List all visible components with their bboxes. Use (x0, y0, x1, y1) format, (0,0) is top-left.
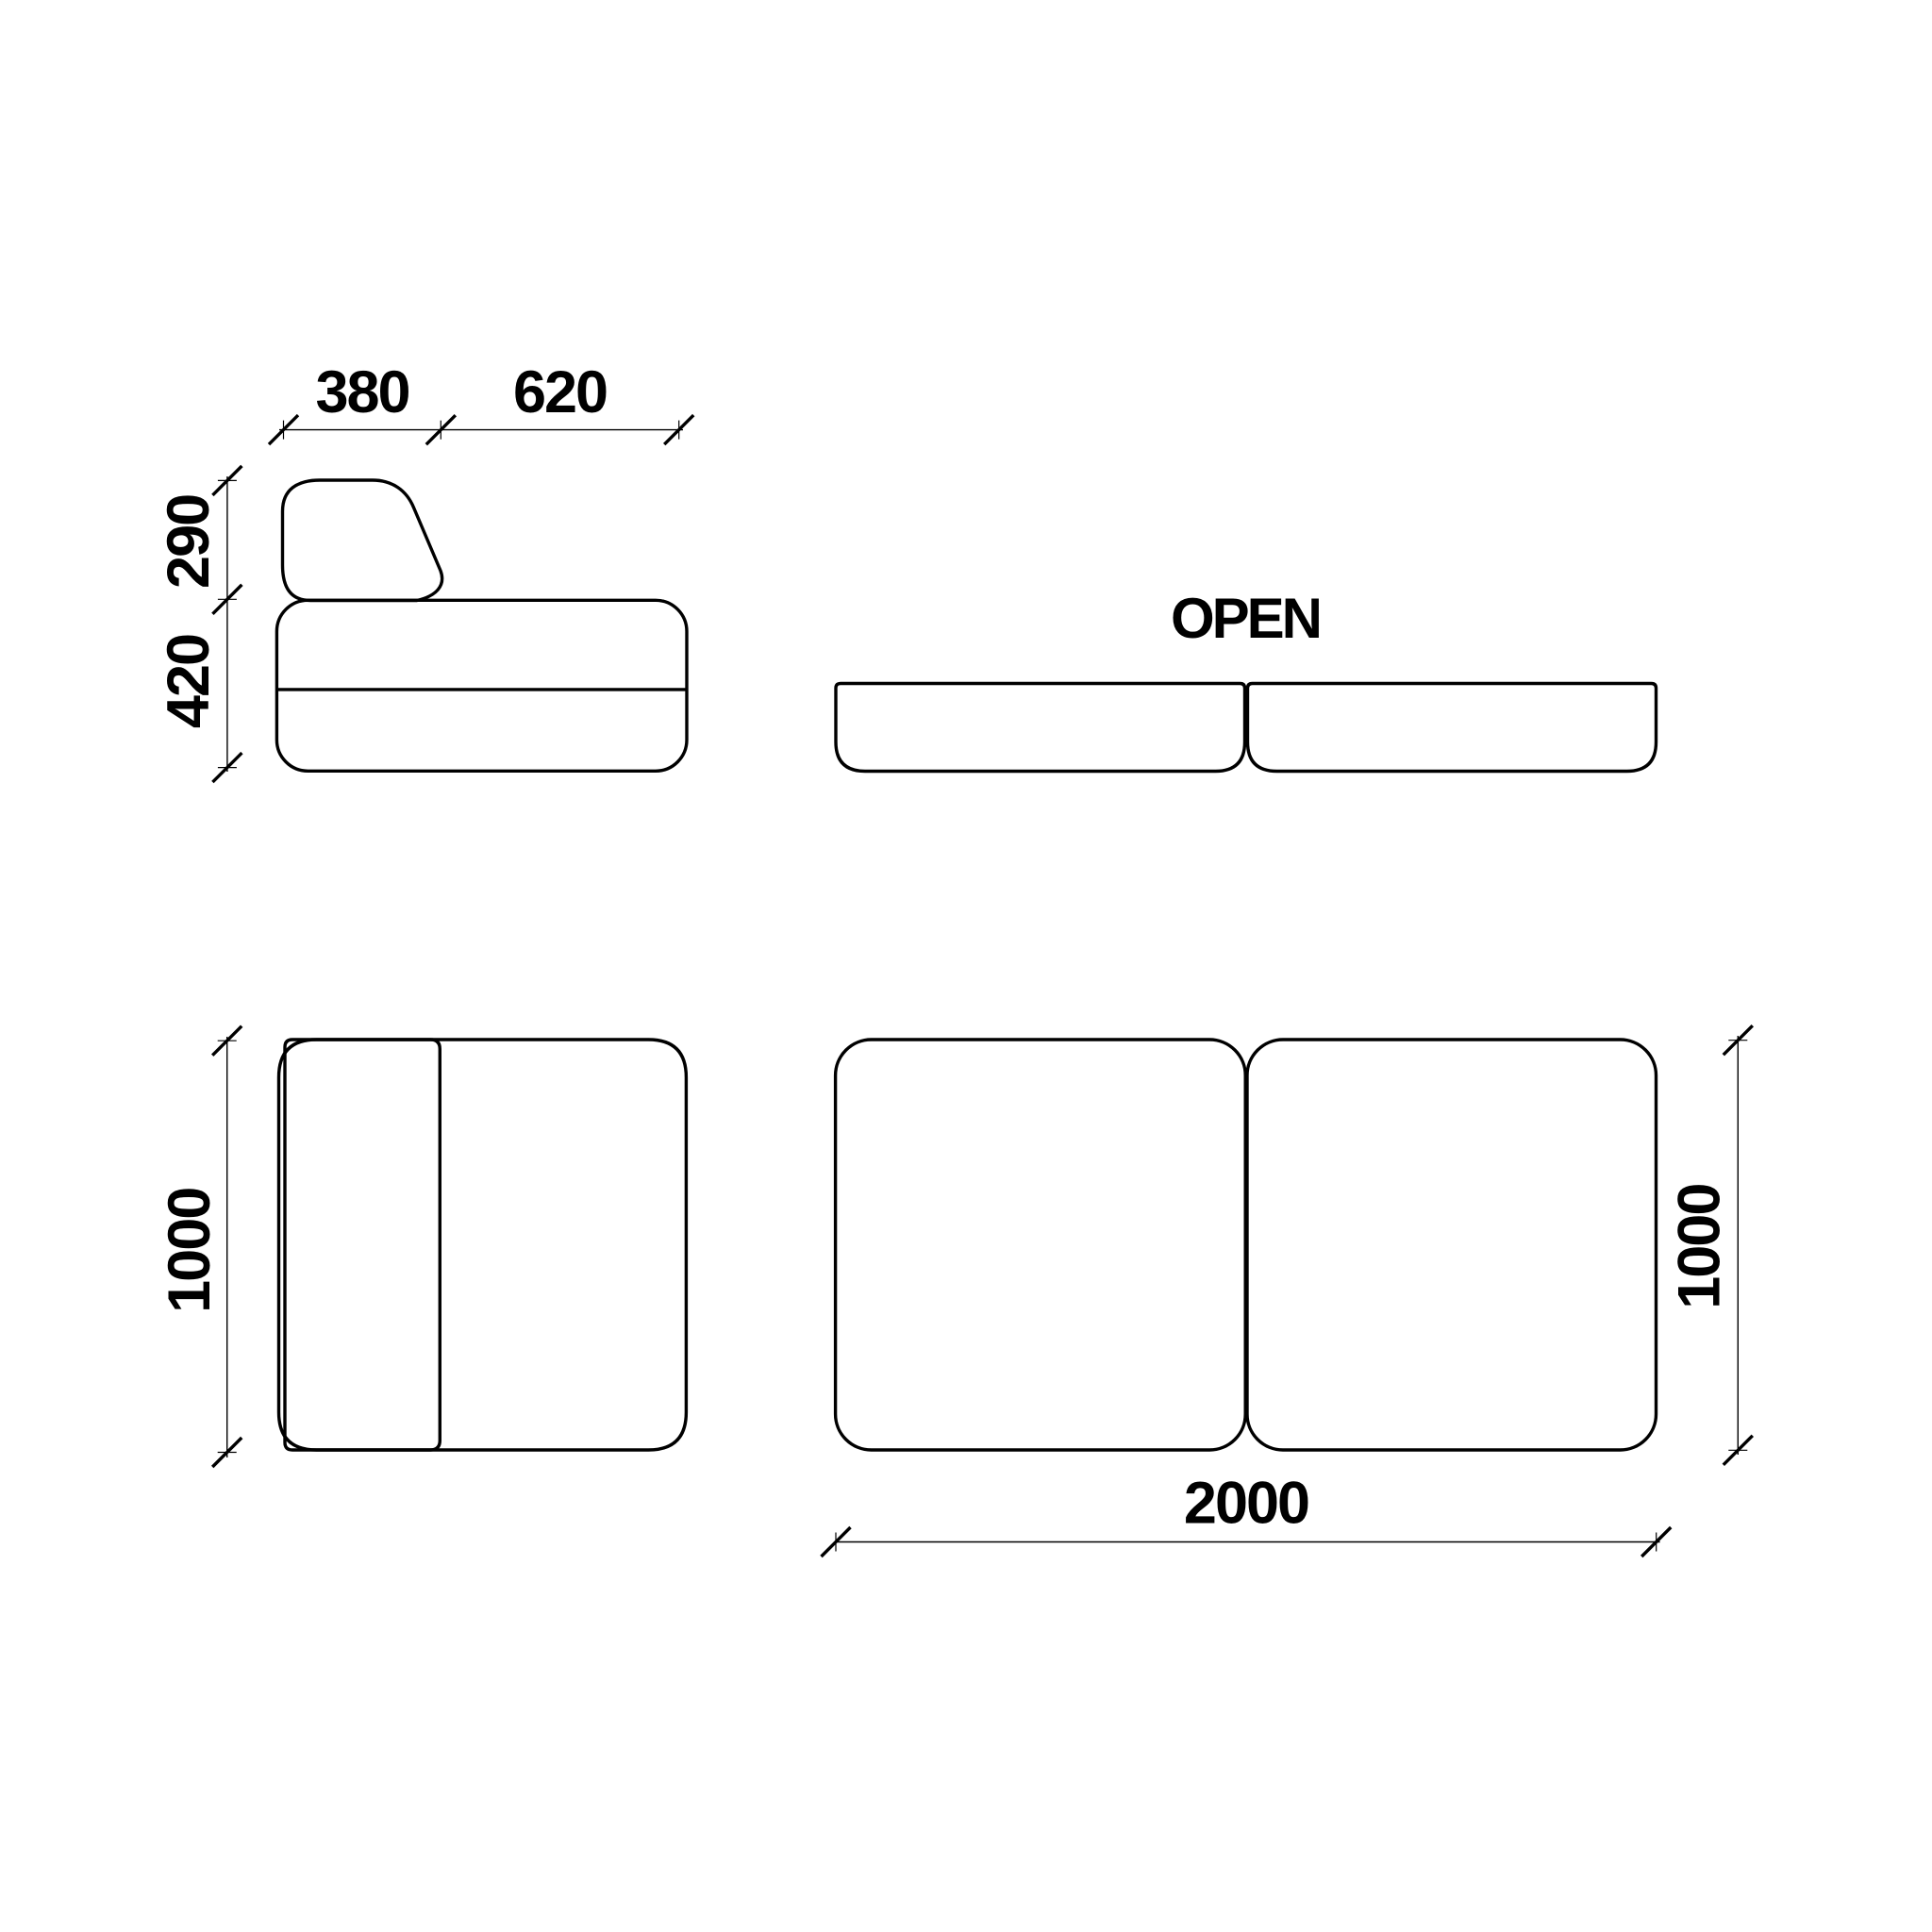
svg-text:OPEN: OPEN (1171, 587, 1320, 650)
svg-text:380: 380 (315, 359, 408, 425)
svg-text:620: 620 (513, 359, 607, 425)
svg-text:290: 290 (156, 495, 222, 589)
svg-text:2000: 2000 (1184, 1470, 1308, 1536)
svg-text:1000: 1000 (157, 1189, 223, 1313)
svg-text:1000: 1000 (1667, 1185, 1733, 1309)
svg-text:420: 420 (156, 635, 222, 728)
